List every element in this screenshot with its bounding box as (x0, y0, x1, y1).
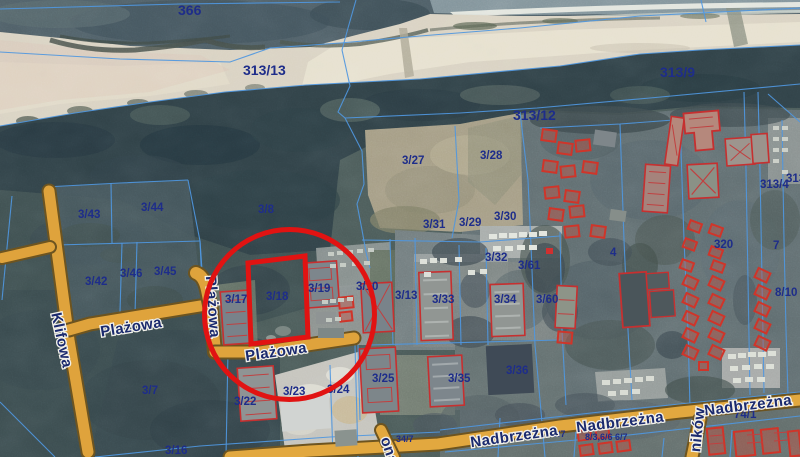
svg-text:3/18: 3/18 (266, 291, 289, 303)
svg-text:3/32: 3/32 (485, 252, 507, 264)
svg-text:3/8: 3/8 (258, 204, 275, 216)
svg-text:4: 4 (610, 247, 617, 259)
svg-text:3/34: 3/34 (494, 294, 517, 306)
svg-text:7: 7 (773, 240, 779, 252)
svg-text:320: 320 (714, 239, 733, 251)
svg-text:3/29: 3/29 (459, 217, 481, 229)
svg-text:3/61: 3/61 (518, 260, 541, 272)
svg-text:3/46: 3/46 (120, 268, 142, 280)
svg-text:3/36: 3/36 (506, 365, 528, 377)
svg-text:313/4: 313/4 (760, 179, 789, 191)
svg-text:3/7: 3/7 (142, 385, 158, 397)
svg-text:3/30: 3/30 (494, 211, 516, 223)
svg-text:3/33: 3/33 (432, 294, 454, 306)
svg-text:313/13: 313/13 (243, 62, 286, 78)
svg-text:3/16: 3/16 (165, 445, 187, 457)
svg-text:313/9: 313/9 (660, 64, 695, 80)
svg-text:3/27: 3/27 (402, 155, 424, 167)
svg-text:3/35: 3/35 (448, 373, 471, 385)
svg-text:313/12: 313/12 (513, 107, 556, 123)
svg-text:3/45: 3/45 (154, 266, 177, 278)
svg-text:3/13: 3/13 (395, 290, 417, 302)
svg-text:3/43: 3/43 (78, 209, 100, 221)
svg-text:3/28: 3/28 (480, 150, 503, 162)
svg-text:3/25: 3/25 (372, 373, 395, 385)
svg-text:34/7: 34/7 (396, 434, 414, 444)
svg-text:3/44: 3/44 (141, 202, 164, 214)
svg-text:3/31: 3/31 (423, 219, 446, 231)
svg-text:366: 366 (178, 2, 202, 18)
svg-text:3/60: 3/60 (536, 294, 558, 306)
svg-text:313: 313 (786, 173, 800, 185)
svg-text:3/22: 3/22 (234, 396, 256, 408)
svg-text:3/19: 3/19 (308, 283, 330, 295)
svg-text:3/17: 3/17 (225, 294, 247, 306)
svg-text:3/42: 3/42 (85, 276, 107, 288)
svg-text:8/10: 8/10 (775, 287, 797, 299)
